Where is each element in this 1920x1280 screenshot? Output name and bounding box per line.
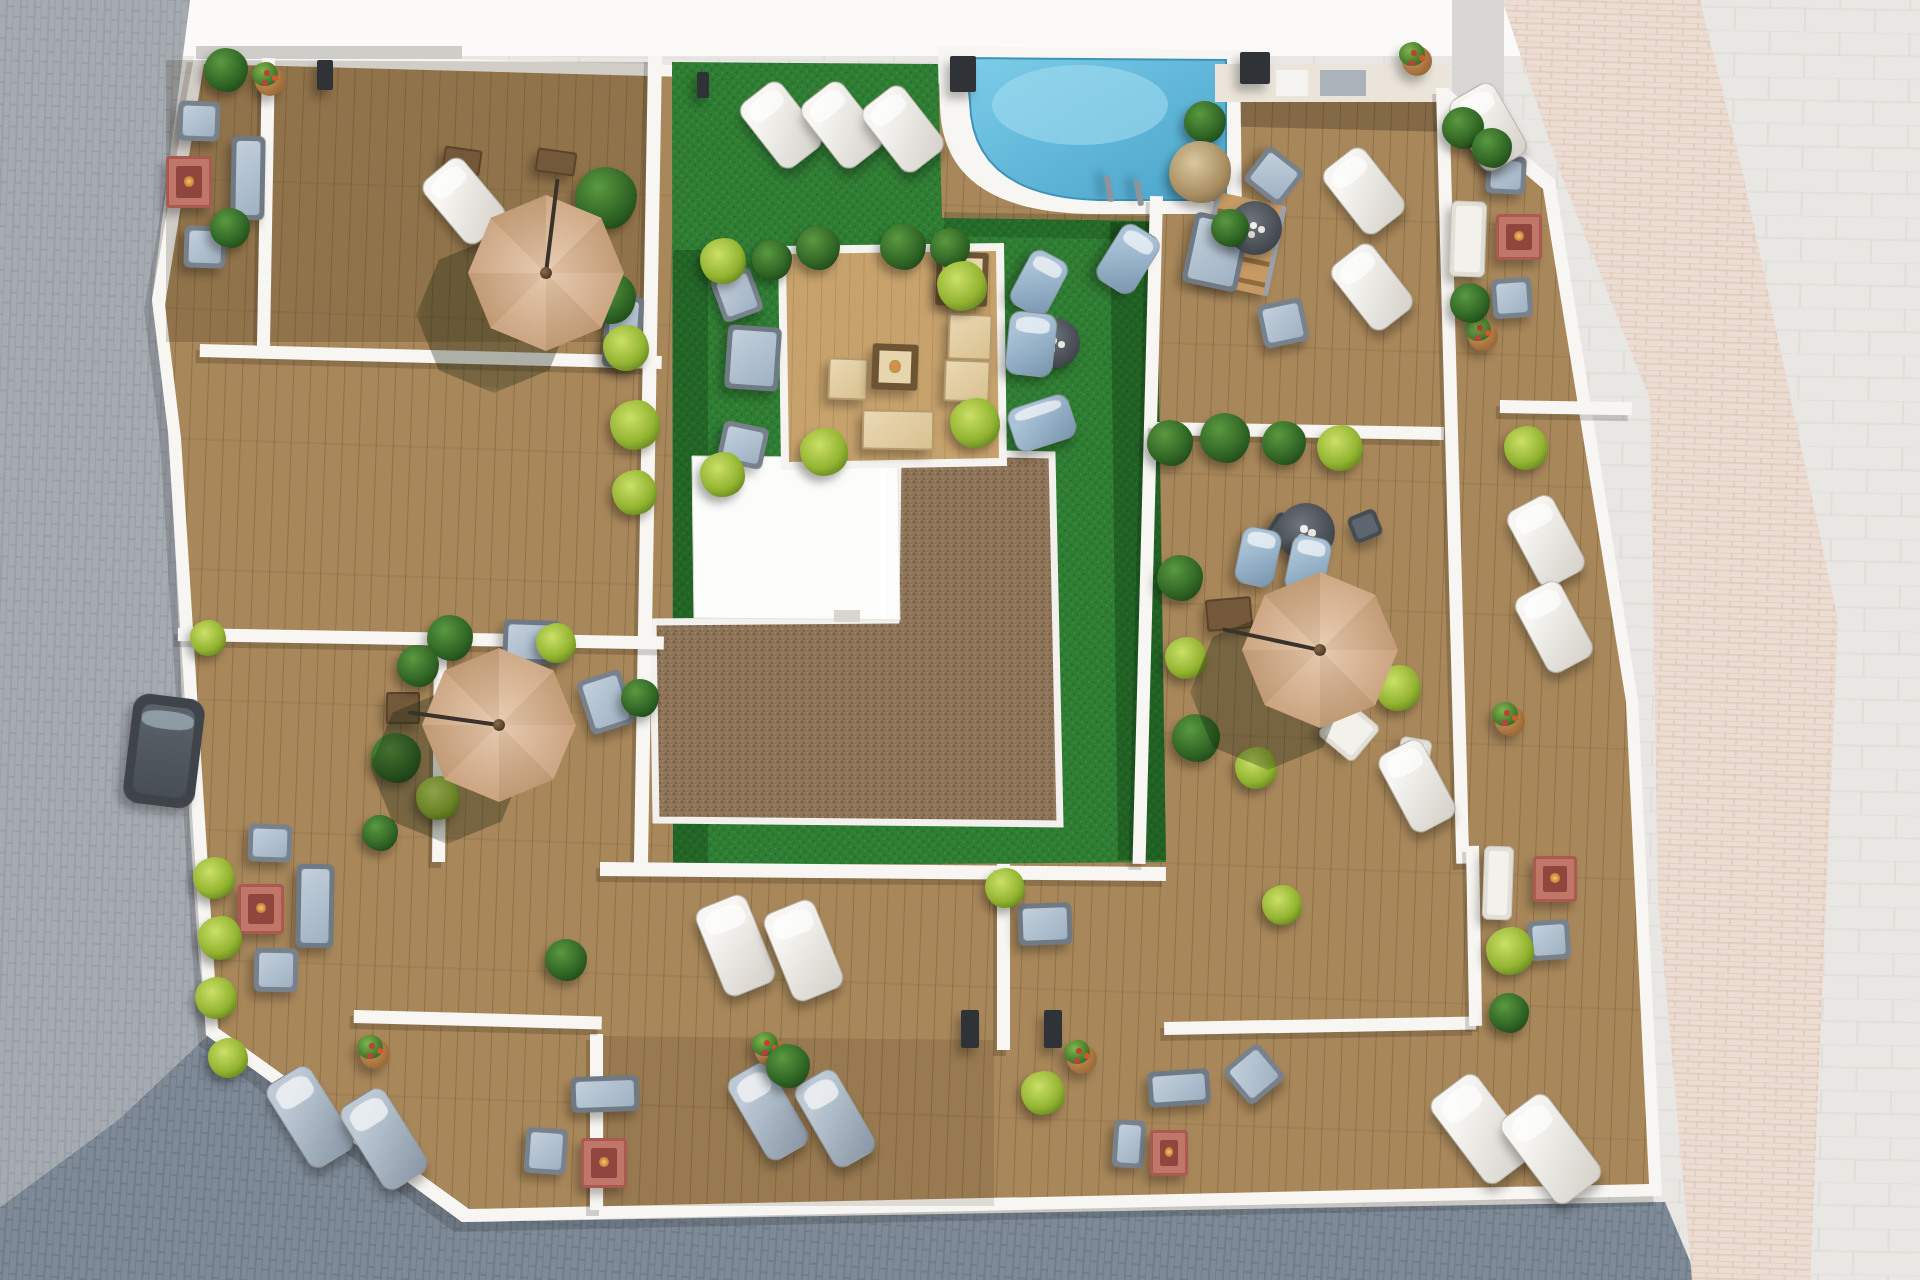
planter-pot bbox=[1495, 706, 1525, 736]
plant bbox=[800, 428, 848, 476]
parasol-umbrella bbox=[1242, 572, 1398, 728]
sofa bbox=[1147, 1068, 1211, 1108]
fire-pit-table bbox=[581, 1138, 627, 1188]
plant bbox=[1486, 927, 1534, 975]
plant bbox=[1021, 1071, 1065, 1115]
sun-lounger bbox=[1092, 219, 1164, 298]
plant bbox=[1157, 555, 1203, 601]
plant bbox=[985, 868, 1025, 908]
planter-pot bbox=[360, 1039, 390, 1069]
parasol-pole bbox=[1314, 644, 1326, 656]
cabana-cushion bbox=[862, 409, 935, 450]
plant bbox=[752, 240, 792, 280]
cabana-cushion bbox=[827, 357, 868, 400]
stool bbox=[1482, 845, 1515, 920]
parasol-pole bbox=[493, 719, 505, 731]
plant bbox=[1262, 885, 1302, 925]
fire-pit-table bbox=[166, 156, 212, 208]
sun-lounger bbox=[857, 81, 948, 178]
plant bbox=[1184, 101, 1226, 143]
armchair bbox=[1242, 145, 1305, 208]
armchair bbox=[177, 100, 220, 141]
plant bbox=[1169, 141, 1231, 203]
planter-pot bbox=[1402, 46, 1432, 76]
plant bbox=[1489, 993, 1529, 1033]
plant bbox=[610, 400, 660, 450]
fire-pit-table bbox=[1533, 856, 1577, 902]
parked-car bbox=[122, 692, 207, 810]
sun-lounger bbox=[1006, 246, 1072, 320]
armchair bbox=[1111, 1119, 1146, 1169]
plant bbox=[937, 261, 987, 311]
lamp-post bbox=[317, 60, 333, 90]
planter-pot bbox=[1067, 1044, 1097, 1074]
plant bbox=[190, 620, 226, 656]
plant bbox=[204, 48, 248, 92]
armchair bbox=[1222, 1042, 1287, 1107]
furniture-layer bbox=[0, 0, 1920, 1280]
grill-post bbox=[1044, 1010, 1062, 1048]
stool bbox=[1449, 200, 1488, 277]
plant bbox=[1472, 128, 1512, 168]
plant bbox=[700, 452, 745, 497]
sofa bbox=[570, 1075, 639, 1113]
sun-lounger bbox=[1326, 239, 1417, 336]
sofa bbox=[230, 136, 265, 221]
plant bbox=[796, 226, 840, 270]
sun-lounger bbox=[692, 891, 779, 1000]
parasol-umbrella bbox=[468, 195, 624, 351]
plant bbox=[198, 916, 242, 960]
armchair bbox=[523, 1127, 568, 1176]
plant bbox=[1200, 413, 1250, 463]
sun-lounger bbox=[1318, 143, 1409, 240]
sofa bbox=[295, 864, 334, 949]
plant bbox=[208, 1038, 248, 1078]
cabana-cushion bbox=[947, 313, 993, 361]
armchair bbox=[247, 823, 292, 863]
armchair bbox=[1256, 297, 1310, 350]
plant bbox=[1450, 283, 1490, 323]
sun-lounger bbox=[1374, 735, 1459, 836]
cabana-cushion bbox=[871, 343, 919, 391]
fire-pit-table bbox=[1496, 214, 1542, 260]
plant bbox=[621, 679, 659, 717]
sun-lounger bbox=[1004, 391, 1079, 455]
plant bbox=[950, 398, 1000, 448]
rooftop-site-plan-render bbox=[0, 0, 1920, 1280]
plant bbox=[612, 470, 657, 515]
sofa bbox=[1017, 902, 1072, 946]
parasol-pole bbox=[540, 267, 552, 279]
lamp-post bbox=[697, 72, 709, 98]
plant bbox=[700, 238, 746, 284]
armchair bbox=[1491, 277, 1534, 320]
parasol-umbrella bbox=[422, 648, 576, 802]
plant bbox=[1504, 426, 1548, 470]
plant bbox=[1147, 420, 1193, 466]
bench bbox=[535, 147, 578, 176]
sun-lounger bbox=[1004, 310, 1058, 379]
pool-handrail bbox=[1134, 180, 1144, 207]
armchair bbox=[254, 948, 299, 993]
fire-pit-table bbox=[238, 884, 284, 934]
plant bbox=[1262, 421, 1306, 465]
fire-pit-table bbox=[1150, 1130, 1188, 1176]
cabana-cushion bbox=[943, 359, 990, 403]
lamp-post bbox=[1240, 52, 1270, 84]
planter-pot bbox=[1468, 321, 1498, 351]
plant bbox=[880, 224, 926, 270]
plant bbox=[1211, 209, 1249, 247]
plant bbox=[195, 977, 237, 1019]
plant bbox=[210, 208, 250, 248]
lamp-post bbox=[950, 56, 976, 92]
plant bbox=[193, 857, 235, 899]
planter-pot bbox=[255, 66, 285, 96]
sofa bbox=[724, 324, 782, 392]
grill-post bbox=[961, 1010, 979, 1048]
plant bbox=[766, 1044, 810, 1088]
plant bbox=[545, 939, 587, 981]
sun-lounger bbox=[760, 896, 847, 1005]
pool-handrail bbox=[1104, 176, 1114, 203]
dark-chair bbox=[1346, 507, 1384, 544]
sun-lounger bbox=[1511, 577, 1597, 677]
plant bbox=[1317, 425, 1363, 471]
sun-lounger bbox=[1503, 491, 1589, 591]
